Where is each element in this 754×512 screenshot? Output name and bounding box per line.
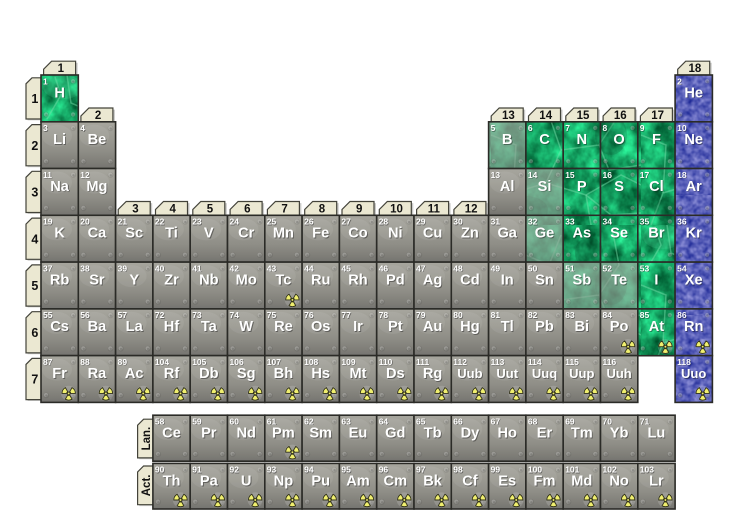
svg-text:Lu: Lu xyxy=(647,426,665,442)
svg-text:7: 7 xyxy=(31,373,38,387)
svg-text:13: 13 xyxy=(491,170,501,180)
svg-text:Tl: Tl xyxy=(501,319,514,335)
svg-text:Hf: Hf xyxy=(164,319,180,335)
svg-text:Hg: Hg xyxy=(460,319,479,335)
svg-text:Lr: Lr xyxy=(649,474,664,490)
svg-text:I: I xyxy=(654,272,658,288)
svg-text:Cs: Cs xyxy=(50,319,69,335)
svg-text:49: 49 xyxy=(491,263,501,273)
svg-text:Ga: Ga xyxy=(497,226,517,242)
svg-text:Pb: Pb xyxy=(535,319,554,335)
svg-text:P: P xyxy=(577,179,587,195)
svg-text:Pd: Pd xyxy=(386,272,405,288)
svg-text:2: 2 xyxy=(95,110,101,122)
svg-text:10: 10 xyxy=(390,204,403,216)
svg-text:Te: Te xyxy=(611,272,627,288)
svg-text:11: 11 xyxy=(428,204,441,216)
svg-text:Rh: Rh xyxy=(348,272,368,288)
svg-text:Sg: Sg xyxy=(237,366,256,382)
svg-text:Fe: Fe xyxy=(312,226,329,242)
svg-text:Fr: Fr xyxy=(52,366,67,382)
svg-text:1: 1 xyxy=(43,76,48,86)
svg-text:Np: Np xyxy=(274,474,294,490)
svg-text:1: 1 xyxy=(31,92,38,106)
svg-text:As: As xyxy=(572,226,591,242)
svg-text:Se: Se xyxy=(610,226,628,242)
svg-text:81: 81 xyxy=(491,310,501,320)
svg-text:Xe: Xe xyxy=(685,272,703,288)
svg-text:16: 16 xyxy=(614,110,627,122)
svg-text:Li: Li xyxy=(53,132,66,148)
svg-text:87: 87 xyxy=(43,357,53,367)
svg-text:Ds: Ds xyxy=(386,366,405,382)
svg-text:Eu: Eu xyxy=(349,426,368,442)
svg-text:16: 16 xyxy=(603,170,613,180)
svg-text:U: U xyxy=(241,474,252,490)
svg-text:14: 14 xyxy=(539,110,552,122)
svg-text:V: V xyxy=(204,226,214,242)
svg-text:Am: Am xyxy=(346,474,370,490)
svg-text:La: La xyxy=(126,319,144,335)
svg-text:78: 78 xyxy=(379,310,389,320)
svg-text:Br: Br xyxy=(648,226,665,242)
svg-text:Pm: Pm xyxy=(272,426,295,442)
svg-text:17: 17 xyxy=(640,170,650,180)
svg-text:5: 5 xyxy=(31,279,38,293)
svg-text:Cu: Cu xyxy=(423,226,442,242)
svg-text:K: K xyxy=(54,226,65,242)
svg-text:Lan.: Lan. xyxy=(141,427,153,451)
svg-text:Ho: Ho xyxy=(497,426,517,442)
svg-text:Al: Al xyxy=(500,179,515,195)
svg-text:Bi: Bi xyxy=(575,319,590,335)
svg-text:Y: Y xyxy=(129,272,139,288)
svg-text:19: 19 xyxy=(43,217,53,227)
svg-text:77: 77 xyxy=(341,310,351,320)
svg-text:In: In xyxy=(501,272,514,288)
svg-text:Pu: Pu xyxy=(311,474,330,490)
svg-text:92: 92 xyxy=(230,465,240,475)
svg-text:Ac: Ac xyxy=(125,366,144,382)
svg-text:Cf: Cf xyxy=(462,474,478,490)
svg-text:Gd: Gd xyxy=(385,426,405,442)
svg-text:4: 4 xyxy=(80,123,85,133)
svg-text:28: 28 xyxy=(379,217,389,227)
svg-text:22: 22 xyxy=(155,217,165,227)
svg-text:Uut: Uut xyxy=(496,366,518,381)
svg-text:9: 9 xyxy=(640,123,645,133)
svg-text:Pa: Pa xyxy=(200,474,219,490)
svg-text:74: 74 xyxy=(230,310,240,320)
svg-text:B: B xyxy=(502,132,513,148)
svg-text:Rg: Rg xyxy=(423,366,442,382)
svg-text:N: N xyxy=(577,132,588,148)
svg-text:18: 18 xyxy=(689,63,702,75)
svg-text:Md: Md xyxy=(571,474,592,490)
svg-text:Hs: Hs xyxy=(311,366,330,382)
svg-text:Be: Be xyxy=(88,132,107,148)
svg-text:C: C xyxy=(539,132,550,148)
svg-text:Ne: Ne xyxy=(684,132,703,148)
svg-text:2: 2 xyxy=(31,139,38,153)
svg-text:Po: Po xyxy=(610,319,629,335)
svg-text:2: 2 xyxy=(677,76,682,86)
svg-text:F: F xyxy=(652,132,661,148)
svg-text:Mo: Mo xyxy=(236,272,257,288)
svg-text:Rf: Rf xyxy=(164,366,180,382)
svg-text:Na: Na xyxy=(50,179,70,195)
svg-text:15: 15 xyxy=(565,170,575,180)
svg-text:39: 39 xyxy=(118,263,128,273)
svg-text:Zr: Zr xyxy=(164,272,179,288)
svg-text:Ir: Ir xyxy=(353,319,363,335)
svg-text:83: 83 xyxy=(565,310,575,320)
svg-text:Db: Db xyxy=(199,366,219,382)
svg-text:Bh: Bh xyxy=(274,366,294,382)
svg-text:53: 53 xyxy=(640,263,650,273)
svg-text:Sb: Sb xyxy=(572,272,591,288)
svg-text:Sn: Sn xyxy=(535,272,554,288)
svg-text:O: O xyxy=(613,132,624,148)
svg-text:9: 9 xyxy=(356,204,362,216)
svg-text:Re: Re xyxy=(274,319,293,335)
svg-text:7: 7 xyxy=(281,204,287,216)
svg-text:Bk: Bk xyxy=(423,474,443,490)
svg-text:6: 6 xyxy=(244,204,250,216)
svg-text:12: 12 xyxy=(465,204,478,216)
svg-text:Tb: Tb xyxy=(424,426,442,442)
svg-text:W: W xyxy=(239,319,253,335)
svg-text:Zn: Zn xyxy=(461,226,479,242)
svg-text:Os: Os xyxy=(311,319,330,335)
svg-text:Uub: Uub xyxy=(457,366,482,381)
svg-text:Kr: Kr xyxy=(686,226,703,242)
svg-text:Ag: Ag xyxy=(423,272,442,288)
svg-text:Ce: Ce xyxy=(162,426,181,442)
svg-text:13: 13 xyxy=(502,110,515,122)
svg-text:8: 8 xyxy=(603,123,608,133)
svg-text:Au: Au xyxy=(423,319,442,335)
svg-text:Fm: Fm xyxy=(534,474,556,490)
svg-text:Act.: Act. xyxy=(141,475,153,497)
svg-text:Cl: Cl xyxy=(649,179,664,195)
svg-text:Uuh: Uuh xyxy=(606,366,631,381)
svg-text:He: He xyxy=(684,85,703,101)
svg-text:Rb: Rb xyxy=(50,272,70,288)
svg-text:4: 4 xyxy=(169,204,176,216)
svg-text:Ta: Ta xyxy=(201,319,218,335)
svg-text:No: No xyxy=(609,474,629,490)
svg-text:Cd: Cd xyxy=(460,272,479,288)
svg-text:Tc: Tc xyxy=(275,272,291,288)
svg-text:Pr: Pr xyxy=(201,426,217,442)
svg-text:Rn: Rn xyxy=(684,319,704,335)
svg-text:8: 8 xyxy=(319,204,326,216)
svg-text:5: 5 xyxy=(491,123,496,133)
svg-text:Mt: Mt xyxy=(349,366,366,382)
svg-text:Ca: Ca xyxy=(88,226,108,242)
svg-text:Dy: Dy xyxy=(461,426,481,442)
svg-text:Uuq: Uuq xyxy=(532,366,557,381)
svg-text:23: 23 xyxy=(192,217,202,227)
svg-text:Nd: Nd xyxy=(236,426,255,442)
svg-text:Ti: Ti xyxy=(165,226,178,242)
svg-text:Ba: Ba xyxy=(88,319,108,335)
svg-text:3: 3 xyxy=(31,186,38,200)
svg-text:Si: Si xyxy=(538,179,552,195)
svg-text:S: S xyxy=(614,179,624,195)
svg-text:14: 14 xyxy=(528,170,538,180)
svg-text:Ge: Ge xyxy=(535,226,554,242)
svg-text:Sc: Sc xyxy=(125,226,143,242)
svg-text:Es: Es xyxy=(498,474,516,490)
svg-text:Pt: Pt xyxy=(388,319,403,335)
svg-text:6: 6 xyxy=(31,326,38,340)
svg-text:7: 7 xyxy=(565,123,570,133)
svg-text:At: At xyxy=(649,319,665,335)
svg-text:Sr: Sr xyxy=(89,272,105,288)
svg-text:Co: Co xyxy=(348,226,368,242)
svg-text:Mn: Mn xyxy=(273,226,294,242)
svg-text:4: 4 xyxy=(31,232,38,246)
svg-text:15: 15 xyxy=(577,110,590,122)
svg-text:Er: Er xyxy=(537,426,553,442)
svg-text:6: 6 xyxy=(528,123,533,133)
svg-text:Cr: Cr xyxy=(238,226,255,242)
svg-text:1: 1 xyxy=(58,63,65,75)
svg-text:Nb: Nb xyxy=(199,272,219,288)
svg-text:Ra: Ra xyxy=(88,366,108,382)
svg-text:Cm: Cm xyxy=(384,474,408,490)
svg-text:3: 3 xyxy=(132,204,138,216)
svg-text:Uup: Uup xyxy=(569,366,594,381)
svg-text:Tm: Tm xyxy=(571,426,593,442)
svg-text:Ru: Ru xyxy=(311,272,330,288)
svg-text:Uuo: Uuo xyxy=(681,366,706,381)
svg-text:Th: Th xyxy=(163,474,181,490)
svg-text:Sm: Sm xyxy=(309,426,332,442)
svg-text:3: 3 xyxy=(43,123,48,133)
svg-text:5: 5 xyxy=(207,204,214,216)
svg-text:17: 17 xyxy=(651,110,664,122)
svg-text:Mg: Mg xyxy=(86,179,107,195)
svg-text:H: H xyxy=(54,85,65,101)
svg-text:40: 40 xyxy=(155,263,165,273)
svg-text:Ar: Ar xyxy=(686,179,703,195)
svg-text:Yb: Yb xyxy=(610,426,629,442)
svg-text:Ni: Ni xyxy=(388,226,403,242)
